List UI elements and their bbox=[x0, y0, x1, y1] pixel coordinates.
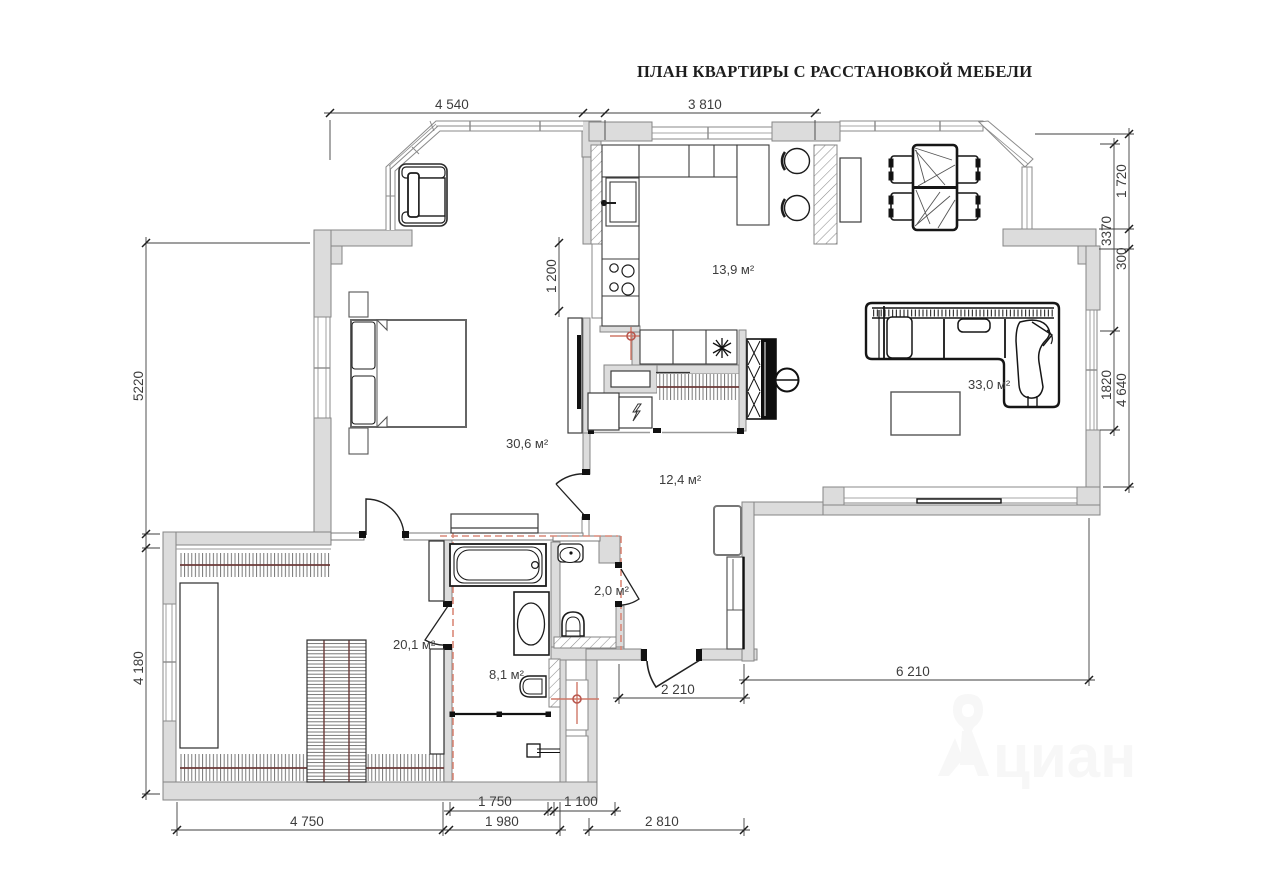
svg-text:4 540: 4 540 bbox=[435, 97, 469, 112]
svg-text:3370: 3370 bbox=[1099, 216, 1114, 246]
svg-text:30,6 м²: 30,6 м² bbox=[506, 436, 549, 451]
svg-text:4 750: 4 750 bbox=[290, 814, 324, 829]
svg-text:циан: циан bbox=[993, 723, 1136, 790]
svg-text:1 200: 1 200 bbox=[544, 259, 559, 293]
svg-text:8,1 м²: 8,1 м² bbox=[489, 667, 525, 682]
svg-text:20,1 м²: 20,1 м² bbox=[393, 637, 436, 652]
svg-text:12,4 м²: 12,4 м² bbox=[659, 472, 702, 487]
svg-text:3 810: 3 810 bbox=[688, 97, 722, 112]
svg-text:2,0 м²: 2,0 м² bbox=[594, 583, 630, 598]
svg-text:5220: 5220 bbox=[131, 371, 146, 401]
svg-text:2 210: 2 210 bbox=[661, 682, 695, 697]
svg-text:4 640: 4 640 bbox=[1114, 373, 1129, 407]
svg-text:33,0 м²: 33,0 м² bbox=[968, 377, 1011, 392]
svg-text:13,9 м²: 13,9 м² bbox=[712, 262, 755, 277]
svg-text:4 180: 4 180 bbox=[131, 651, 146, 685]
svg-text:6 210: 6 210 bbox=[896, 664, 930, 679]
svg-text:1 720: 1 720 bbox=[1114, 164, 1129, 198]
svg-text:1 750: 1 750 bbox=[478, 794, 512, 809]
svg-text:1 980: 1 980 bbox=[485, 814, 519, 829]
svg-text:300: 300 bbox=[1114, 247, 1129, 270]
svg-text:1 100: 1 100 bbox=[564, 794, 598, 809]
svg-text:1820: 1820 bbox=[1099, 370, 1114, 400]
svg-text:ПЛАН КВАРТИРЫ С РАССТАНОВКОЙ М: ПЛАН КВАРТИРЫ С РАССТАНОВКОЙ МЕБЕЛИ bbox=[637, 62, 1032, 81]
svg-text:2 810: 2 810 bbox=[645, 814, 679, 829]
